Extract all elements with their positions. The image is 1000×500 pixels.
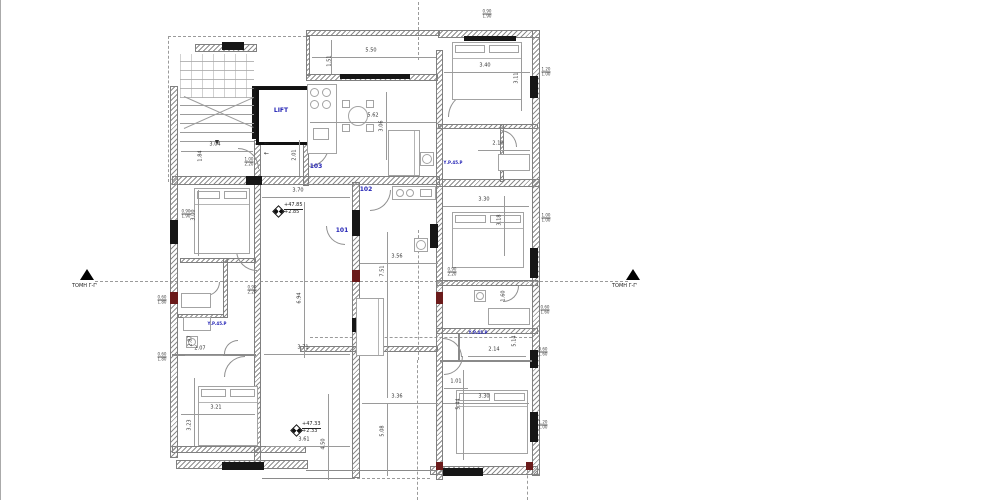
window-dimension-label: 0.601.60 — [539, 348, 548, 357]
wall-window-black — [222, 42, 244, 50]
page-border-line — [0, 0, 1, 500]
wall-hatched — [306, 36, 310, 76]
section-label: ΤΟΜΗ Γ-Γ' — [72, 283, 97, 289]
partition-line — [262, 478, 354, 479]
window-dimension-label: 1.001.00 — [542, 214, 551, 223]
bed-pillow — [455, 215, 486, 223]
dimension-line — [262, 197, 350, 198]
dimension-line — [185, 355, 223, 356]
window-dim-bottom: 1.90 — [483, 14, 492, 19]
kitchen-sink — [313, 128, 329, 140]
sofa-back-line — [414, 131, 415, 175]
dimension-label: 3.04 — [209, 143, 220, 148]
wall-window-black — [530, 248, 538, 278]
window-dimension-label: 1.201.00 — [539, 421, 548, 430]
dimension-label: 3.40 — [479, 64, 490, 69]
dimension-label: 3.21 — [210, 406, 221, 411]
wall-window-black — [530, 350, 538, 368]
dimension-line — [444, 388, 468, 389]
lift-arrow: ← — [264, 141, 269, 147]
window-dim-bottom: 2.20 — [448, 272, 457, 277]
window-dim-bottom: 1.60 — [541, 310, 550, 315]
window-dim-bottom: 1.80 — [158, 357, 167, 362]
door-swing — [370, 190, 391, 211]
dimension-label: 2.87 — [189, 335, 194, 346]
dimension-label: 1.60 — [502, 290, 507, 301]
washing-machine-drum — [422, 154, 432, 164]
window-dim-bottom: 2.20 — [248, 290, 257, 295]
wall-hatched — [306, 30, 440, 36]
bathtub — [181, 293, 211, 308]
dimension-label: 5.08 — [381, 425, 386, 436]
window-dim-bottom: 1.00 — [542, 218, 551, 223]
window-dim-bottom: 1.90 — [182, 214, 191, 219]
level-marker-text: +47.85+2.85 — [284, 203, 303, 215]
window-dimension-label: 0.901.90 — [182, 210, 191, 219]
wall-window-black — [340, 74, 410, 79]
dimension-label: 3.18 — [498, 214, 503, 225]
window-dimension-label: 0.902.20 — [448, 268, 457, 277]
level-marker-icon — [272, 205, 285, 218]
dimension-line — [478, 150, 530, 151]
wall-window-black — [246, 176, 262, 185]
dashed-centerline — [168, 36, 306, 37]
column-block — [170, 292, 178, 304]
dimension-line — [360, 263, 438, 264]
stove-burner — [310, 100, 319, 109]
dimension-label: 1.51 — [328, 55, 333, 66]
dimension-label: 3.00 — [192, 209, 197, 220]
dimension-label: 3.06 — [380, 120, 385, 131]
stove-burner — [396, 189, 404, 197]
bed-pillow — [489, 45, 519, 53]
dimension-line — [443, 206, 529, 207]
dimension-label: 1.01 — [450, 380, 461, 385]
wall-window-black — [430, 224, 438, 248]
partition-line — [306, 470, 436, 471]
bed-blanket-line — [199, 402, 257, 403]
dimension-label: 3.36 — [391, 395, 402, 400]
bed-pillow — [455, 45, 485, 53]
wall-window-black — [530, 76, 538, 98]
lift-arrow: ← — [264, 151, 269, 157]
door-swing — [224, 340, 238, 354]
window-dim-bottom: 1.00 — [542, 72, 551, 77]
chair — [366, 100, 374, 108]
dimension-line — [362, 403, 438, 404]
wall-window-black — [464, 36, 516, 41]
window-dimension-label: 0.601.80 — [158, 353, 167, 362]
wall-hatched — [436, 280, 538, 286]
door-swing — [444, 356, 463, 375]
section-triangle-icon — [80, 269, 94, 280]
lift-label: LIFT — [274, 108, 288, 114]
dimension-label: 6.94 — [298, 292, 303, 303]
dimension-label: 3.11 — [515, 72, 520, 83]
room-number-tag: 101 — [336, 228, 349, 234]
dashed-centerline — [417, 360, 418, 500]
chair — [342, 100, 350, 108]
room-number-tag: Υ.Ρ.45.Ρ — [444, 161, 463, 165]
dimension-label: 3.30 — [478, 198, 489, 203]
chair — [366, 124, 374, 132]
sofa — [388, 130, 420, 176]
wall-window-black — [443, 468, 483, 476]
washbasin-bowl — [416, 240, 426, 250]
bed-blanket-line — [453, 58, 521, 59]
bed-pillow — [224, 191, 247, 199]
window-dim-bottom: 1.60 — [539, 352, 548, 357]
sofa — [356, 298, 384, 356]
wall-hatched — [172, 446, 306, 453]
room-number-tag: 103 — [310, 164, 323, 170]
washbasin-bowl — [476, 292, 484, 300]
bed-blanket-line — [195, 204, 249, 205]
dimension-line — [181, 414, 255, 415]
wall-hatched — [438, 124, 538, 129]
dimension-label: 5.50 — [365, 49, 376, 54]
dimension-label: 5.62 — [367, 114, 378, 119]
column-block — [526, 462, 533, 470]
dashed-centerline — [168, 36, 169, 182]
bathtub — [498, 154, 530, 171]
bed-pillow — [490, 215, 521, 223]
section-label: ΤΟΜΗ Γ-Γ' — [612, 283, 640, 289]
bed-pillow — [494, 393, 525, 401]
dimension-line — [198, 190, 199, 256]
dimension-label: 3.71 — [297, 346, 308, 351]
dimension-line — [328, 394, 329, 480]
window-dim-bottom: 1.00 — [539, 425, 548, 430]
dimension-line — [264, 354, 350, 355]
room-number-tag: Υ.Ρ.45.Ρ — [208, 322, 227, 326]
dimension-line — [299, 140, 300, 176]
room-number-tag: 102 — [360, 187, 373, 193]
dimension-line — [304, 202, 305, 358]
dimension-label: 3.23 — [188, 419, 193, 430]
lift-shaft — [256, 87, 312, 145]
window-dimension-label: 0.901.90 — [483, 10, 492, 19]
wall-window-black — [170, 220, 178, 244]
dimension-label: 3.30 — [478, 395, 489, 400]
stair-treads-upper — [180, 54, 254, 98]
window-dimension-label: 1.201.00 — [542, 68, 551, 77]
wall-window-black — [530, 412, 538, 442]
window-dim-bottom: 2.20 — [245, 162, 254, 167]
dimension-line — [310, 122, 436, 123]
stove-burner — [310, 88, 319, 97]
dimension-line — [387, 232, 388, 398]
dimension-line — [521, 45, 522, 111]
dimension-label: 2.01 — [293, 149, 298, 160]
wall-window-black — [222, 462, 264, 470]
section-marker-right: ΤΟΜΗ Γ-Γ' — [626, 269, 640, 289]
wall-hatched — [223, 258, 228, 318]
dimension-line — [504, 196, 505, 256]
bed-pillow — [201, 389, 226, 397]
column-block — [436, 462, 443, 470]
window-dim-bottom: 1.80 — [158, 300, 167, 305]
dimension-label: 5.14 — [513, 335, 518, 346]
dimension-label: 7.51 — [381, 265, 386, 276]
dimension-line — [386, 92, 387, 160]
wall-window-black — [352, 210, 360, 236]
window-dimension-label: 0.601.80 — [158, 296, 167, 305]
window-dimension-label: 1.002.20 — [245, 158, 254, 167]
level-value-relative: +2.33 — [302, 429, 321, 435]
dimension-line — [387, 404, 388, 476]
dimension-label: 4.50 — [322, 438, 327, 449]
kitchen-sink — [420, 189, 432, 197]
floor-plan-canvas: LIFT←←5.501.513.403.115.623.063.041.842.… — [0, 0, 1000, 500]
floor-plan-sheet: LIFT←←5.501.513.403.115.623.063.041.842.… — [0, 0, 1000, 500]
bathtub — [488, 308, 530, 325]
door-swing — [224, 356, 245, 377]
stair-treads-lower — [180, 98, 254, 142]
stove-burner — [406, 189, 414, 197]
column-block — [352, 270, 360, 282]
window-dimension-label: 0.601.60 — [541, 306, 550, 315]
dimension-label: 1.84 — [199, 150, 204, 161]
wall-hatched — [170, 86, 178, 458]
dimension-label: 5.44 — [457, 398, 462, 409]
dimension-label: 3.56 — [391, 255, 402, 260]
dining-table — [348, 106, 368, 126]
sofa-back-line — [378, 299, 379, 355]
dimension-line — [181, 151, 253, 152]
dimension-label: 2.10 — [492, 142, 503, 147]
wall-hatched — [436, 50, 443, 480]
dimension-line — [468, 356, 526, 357]
section-triangle-icon — [626, 269, 640, 280]
dashed-centerline — [310, 337, 532, 338]
bed-blanket-line — [457, 406, 527, 407]
dimension-label: 2.07 — [194, 347, 205, 352]
bed-pillow — [197, 191, 220, 199]
dimension-label: 3.70 — [292, 189, 303, 194]
stove-burner — [322, 88, 331, 97]
dimension-line — [194, 378, 195, 446]
bed-blanket-line — [453, 228, 523, 229]
dimension-label: 3.61 — [298, 438, 309, 443]
dimension-label: 2.14 — [488, 348, 499, 353]
room-number-tag: Υ.Ρ.45.Ρ — [469, 331, 488, 335]
stove-burner — [322, 100, 331, 109]
dimension-line — [463, 370, 464, 460]
section-marker-left: ΤΟΜΗ Γ-Γ' — [80, 269, 97, 289]
level-marker-icon — [290, 424, 303, 437]
bed-pillow — [230, 389, 255, 397]
level-marker-text: +47.33+2.33 — [302, 422, 321, 434]
wall-hatched — [436, 179, 540, 187]
level-value-relative: +2.85 — [284, 210, 303, 216]
chair — [342, 124, 350, 132]
window-dimension-label: 0.902.20 — [248, 286, 257, 295]
column-block — [436, 292, 443, 304]
dimension-line — [266, 446, 350, 447]
